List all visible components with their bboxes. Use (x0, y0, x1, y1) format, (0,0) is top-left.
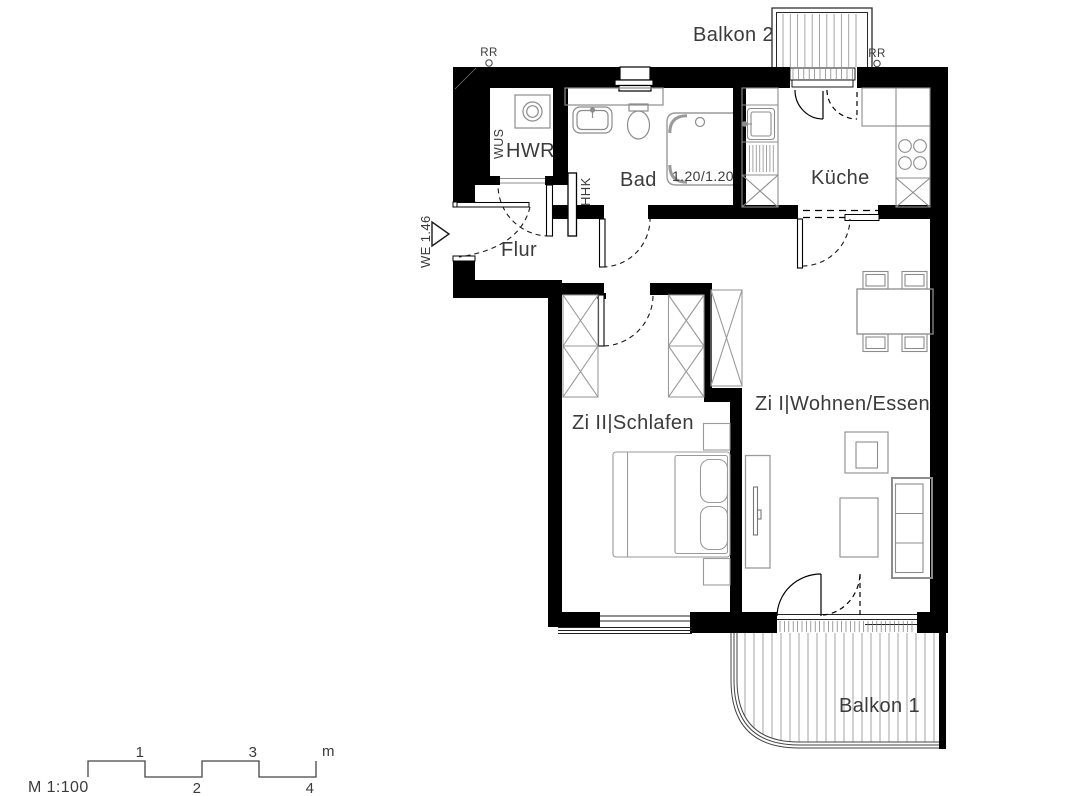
balcony2-decking (783, 14, 856, 67)
label-kueche: Küche (811, 167, 870, 189)
dish-drainer (750, 145, 774, 172)
scale-tick-3: 3 (249, 744, 258, 761)
radiator-hhk (568, 173, 577, 236)
balcony2 (772, 8, 872, 68)
dining-chair (902, 272, 927, 290)
floorplan-page: Balkon 2 HWR Bad Küche Flur Zi II|Schlaf… (0, 0, 1089, 796)
label-balkon2: Balkon 2 (693, 24, 774, 46)
dining-chair (863, 334, 888, 352)
wardrobe-living (711, 290, 742, 386)
kitchen-door (798, 211, 880, 269)
nightstand-bottom (704, 559, 731, 586)
label-rr-left: RR (480, 47, 497, 59)
kitchen-counter-left (742, 88, 778, 207)
scale-unit: m (322, 743, 335, 760)
sofa (892, 478, 932, 578)
bedroom-door (597, 293, 653, 346)
bathroom-sink (573, 107, 612, 133)
label-we: WE 1.46 (418, 215, 433, 268)
scale-bar: M 1:100 1 2 3 4 m (28, 743, 335, 796)
label-shower-dim: 1.20/1.20 (672, 168, 734, 184)
bathroom-door (600, 219, 651, 267)
balcony1-decking (745, 633, 934, 742)
kitchen-fixtures (742, 88, 930, 207)
label-hhk: HHK (578, 177, 593, 206)
bed (613, 452, 730, 557)
balcony1 (731, 621, 946, 749)
nightstand-top (704, 424, 731, 451)
scale-tick-1: 1 (136, 744, 145, 761)
coffee-table (840, 498, 878, 557)
label-flur: Flur (501, 239, 537, 261)
dining-chair (902, 334, 927, 352)
entrance-direction-icon (432, 222, 449, 246)
dining-chair (863, 272, 888, 290)
scale-ratio-label: M 1:100 (28, 779, 89, 796)
kitchen-counter-right (862, 88, 930, 207)
label-balkon1: Balkon 1 (839, 695, 920, 717)
downpipe-left-icon (486, 60, 492, 66)
balcony1-threshold-hatch (780, 621, 912, 632)
wardrobe-1 (563, 295, 598, 397)
armchair (845, 432, 888, 473)
wardrobe-2 (669, 295, 705, 397)
tv-sideboard (746, 456, 771, 569)
kitchen-sink (742, 109, 774, 140)
washing-machine (515, 95, 550, 128)
label-bad: Bad (620, 169, 657, 191)
downpipe-right-icon (874, 60, 880, 66)
balcony2-door (790, 68, 857, 119)
dining-table (857, 272, 933, 352)
balcony1-door (777, 574, 917, 625)
toilet (628, 104, 650, 139)
label-rr-right: RR (868, 48, 885, 60)
label-zi1: Zi I|Wohnen/Essen (755, 393, 930, 415)
label-zi2: Zi II|Schlafen (572, 412, 694, 434)
stove-burners (899, 140, 927, 170)
scale-tick-4: 4 (306, 780, 315, 796)
scale-tick-2: 2 (193, 780, 202, 796)
label-wus: WUS (492, 129, 506, 159)
living-furniture (711, 272, 933, 579)
label-hwr: HWR (506, 140, 555, 162)
floorplan-drawing: Balkon 2 HWR Bad Küche Flur Zi II|Schlaf… (0, 0, 1089, 796)
